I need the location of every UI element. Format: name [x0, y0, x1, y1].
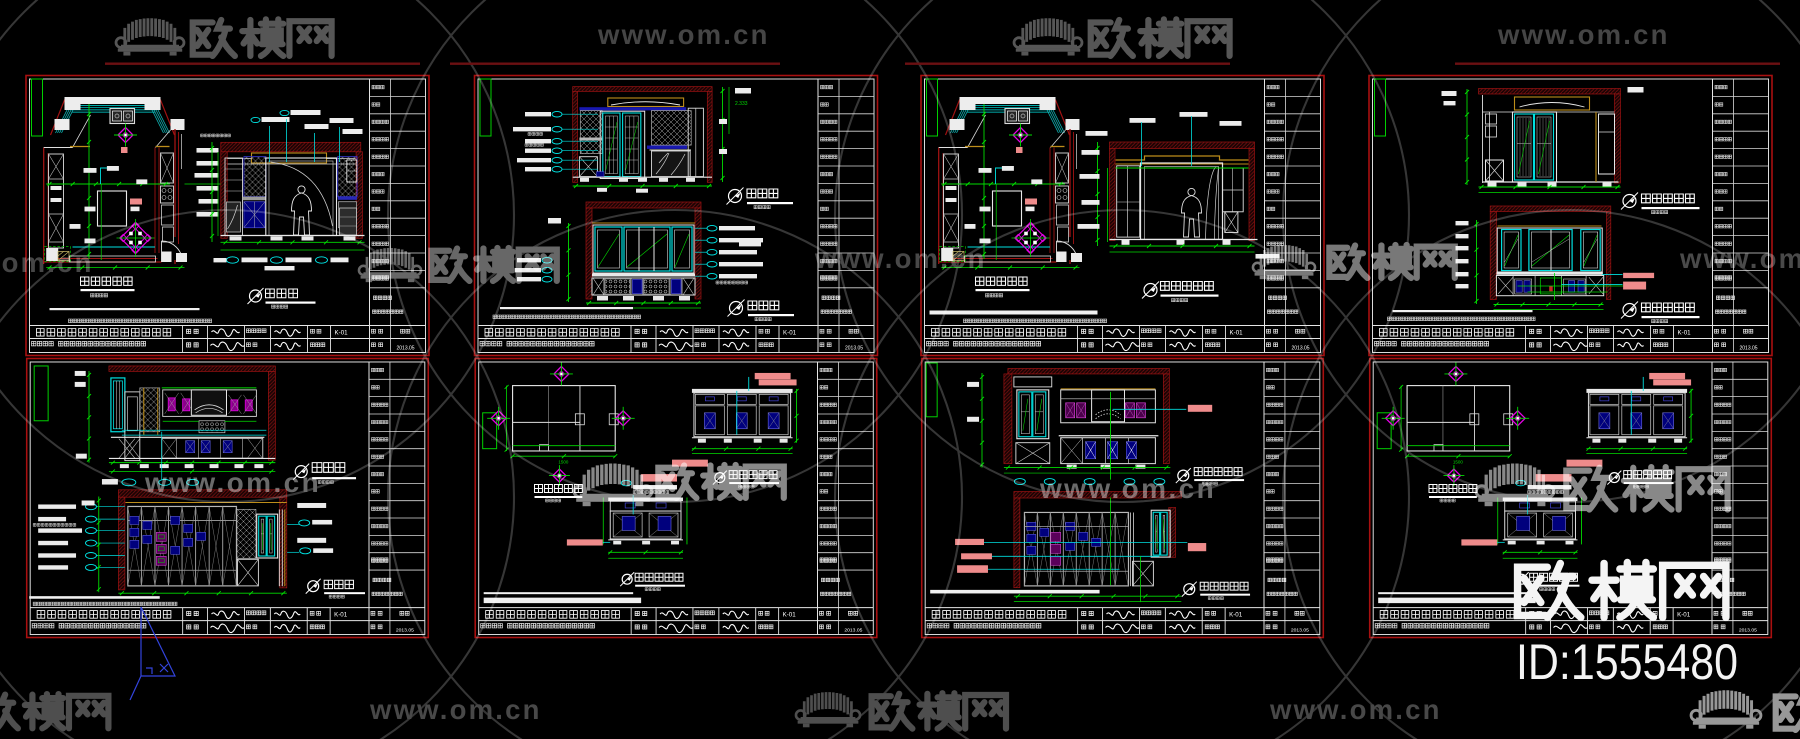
svg-text:ID:1555480: ID:1555480 [1516, 634, 1738, 690]
